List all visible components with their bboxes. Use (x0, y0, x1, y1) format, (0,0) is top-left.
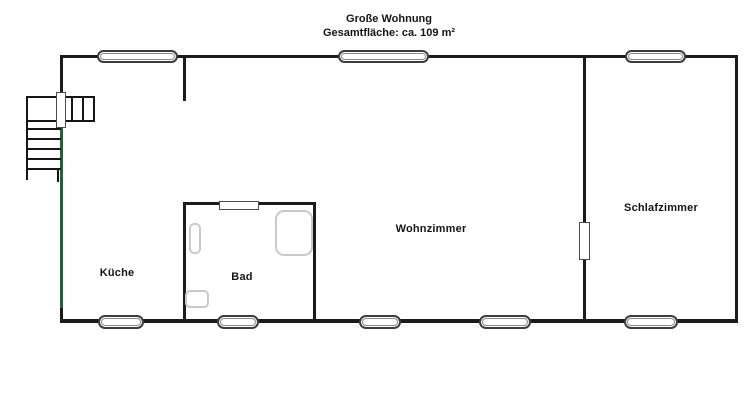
window-living-bottom-1 (359, 315, 401, 329)
shower-fixture (275, 210, 313, 256)
stairs-upper-tread-1 (71, 96, 73, 122)
window-living-top (338, 50, 429, 63)
stairs-lower-end (57, 170, 59, 182)
room-label-bedroom: Schlafzimmer (624, 202, 698, 214)
floor-plan: Große Wohnung Gesamtfläche: ca. 109 m² K… (0, 0, 747, 420)
room-label-bathroom: Bad (231, 271, 252, 283)
stairs-lower-tread-4 (27, 158, 61, 160)
plan-title: Große Wohnung Gesamtfläche: ca. 109 m² (323, 12, 455, 40)
toilet-fixture (185, 290, 209, 308)
plan-title-line2: Gesamtfläche: ca. 109 m² (323, 26, 455, 40)
outer-wall-left-lower (60, 308, 63, 323)
stairs-lower-tread-1 (27, 128, 61, 130)
outer-wall-left-upper (60, 55, 63, 92)
kitchen-stub-wall (183, 55, 186, 101)
bathroom-door (219, 201, 259, 210)
window-bathroom-bottom (217, 315, 259, 329)
stairs-lower-tread-3 (27, 148, 61, 150)
entrance-door (56, 92, 66, 128)
bedroom-divider-wall (583, 55, 586, 321)
radiator-fixture (189, 223, 201, 254)
stairs-lower-tread-5 (27, 168, 61, 170)
stairs-upper-tread-2 (82, 96, 84, 122)
bedroom-door (579, 222, 590, 260)
room-label-living-room: Wohnzimmer (396, 223, 467, 235)
plan-title-line1: Große Wohnung (323, 12, 455, 26)
stairs-upper-end (93, 96, 95, 122)
bathroom-wall-right (313, 202, 316, 321)
stairs-lower-tread-2 (27, 138, 61, 140)
window-bedroom-bottom (624, 315, 678, 329)
window-kitchen-top (97, 50, 178, 63)
window-bedroom-top (625, 50, 686, 63)
outer-wall-left-accent (60, 128, 63, 308)
window-living-bottom-2 (479, 315, 531, 329)
outer-wall-right (735, 55, 738, 323)
room-label-kitchen: Küche (100, 267, 135, 279)
window-kitchen-bottom (98, 315, 144, 329)
